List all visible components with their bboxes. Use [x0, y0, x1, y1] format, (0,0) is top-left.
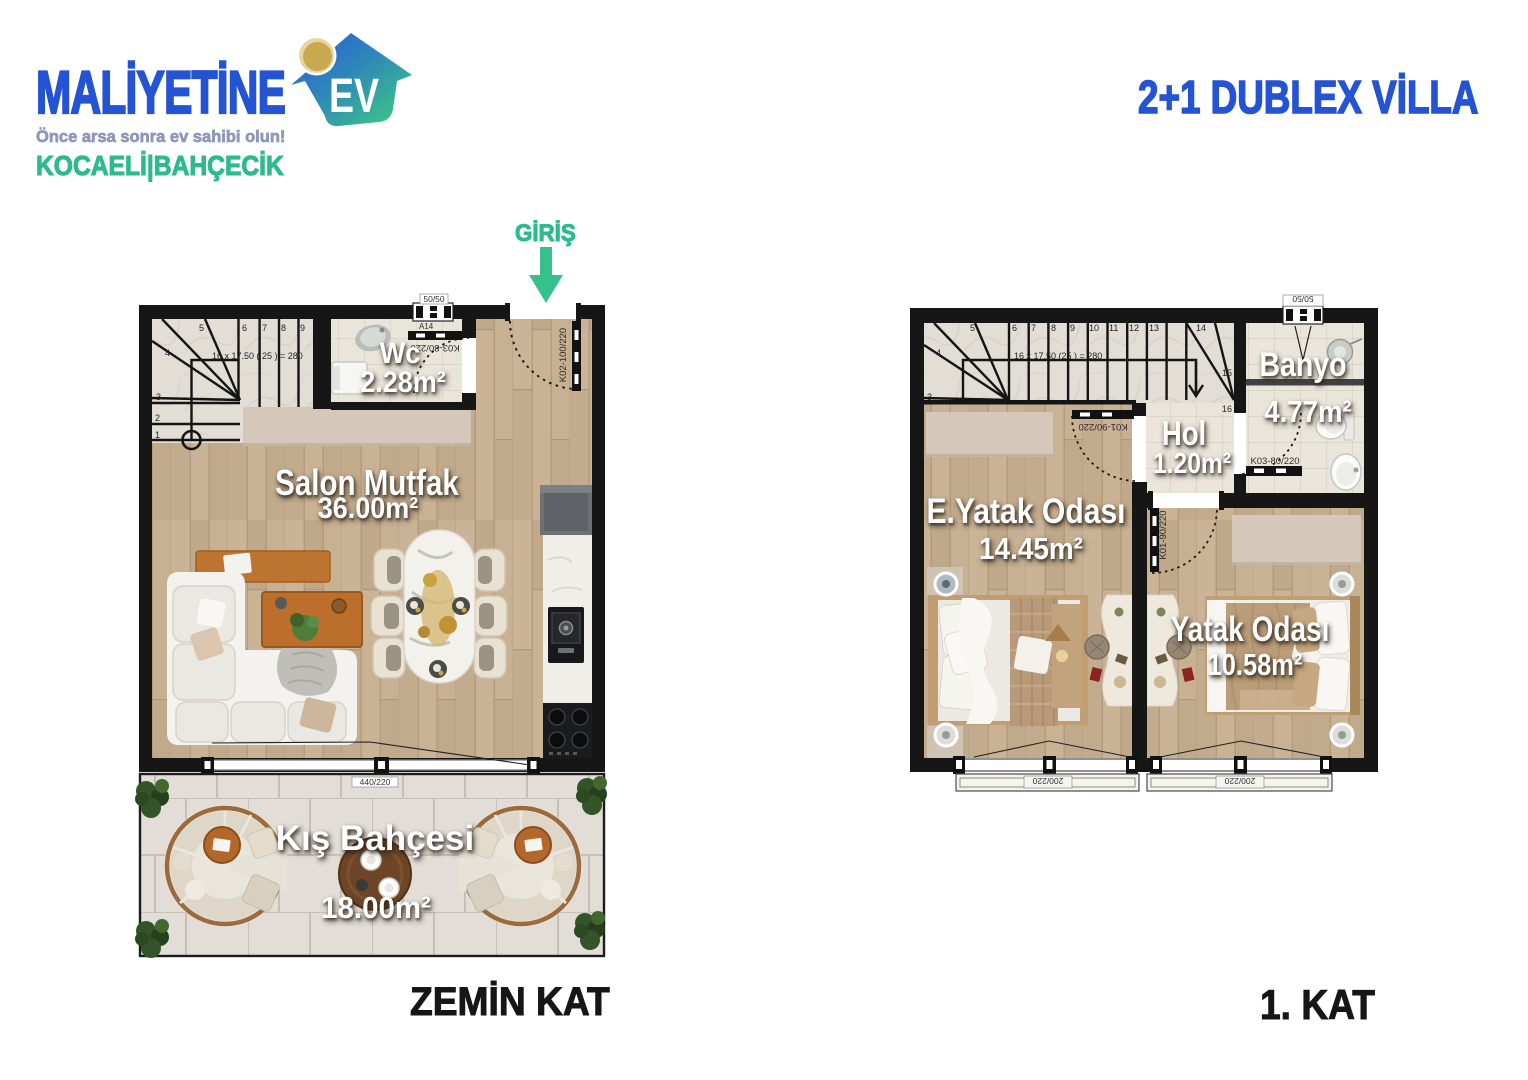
svg-text:7: 7 [262, 323, 267, 333]
svg-text:200/220: 200/220 [1224, 776, 1255, 786]
svg-text:2: 2 [155, 413, 160, 423]
svg-text:EV: EV [329, 70, 379, 123]
svg-text:5: 5 [970, 323, 975, 333]
svg-text:9: 9 [1070, 323, 1075, 333]
svg-text:K02-100/220: K02-100/220 [558, 328, 569, 382]
svg-text:9: 9 [300, 323, 305, 333]
svg-text:14: 14 [1196, 323, 1206, 333]
svg-text:6: 6 [242, 323, 247, 333]
svg-text:12: 12 [1129, 323, 1139, 333]
svg-text:11: 11 [1109, 323, 1118, 333]
svg-text:10: 10 [1089, 323, 1099, 333]
svg-text:4: 4 [936, 348, 941, 358]
svg-text:440/220: 440/220 [360, 777, 391, 787]
svg-text:8: 8 [1051, 323, 1056, 333]
svg-text:4: 4 [165, 348, 170, 358]
svg-text:13: 13 [1149, 323, 1159, 333]
svg-text:50/50: 50/50 [1292, 294, 1314, 304]
svg-text:8: 8 [281, 323, 286, 333]
svg-text:16 x 17.50 (25 ) = 280: 16 x 17.50 (25 ) = 280 [1014, 351, 1102, 361]
svg-text:5: 5 [199, 323, 204, 333]
svg-text:3: 3 [156, 392, 161, 402]
svg-text:A14: A14 [419, 322, 434, 331]
svg-text:50/50: 50/50 [423, 294, 445, 304]
svg-text:1: 1 [155, 430, 160, 440]
svg-text:200/220: 200/220 [1032, 776, 1063, 786]
svg-text:6: 6 [1012, 323, 1017, 333]
svg-text:7: 7 [1031, 323, 1036, 333]
